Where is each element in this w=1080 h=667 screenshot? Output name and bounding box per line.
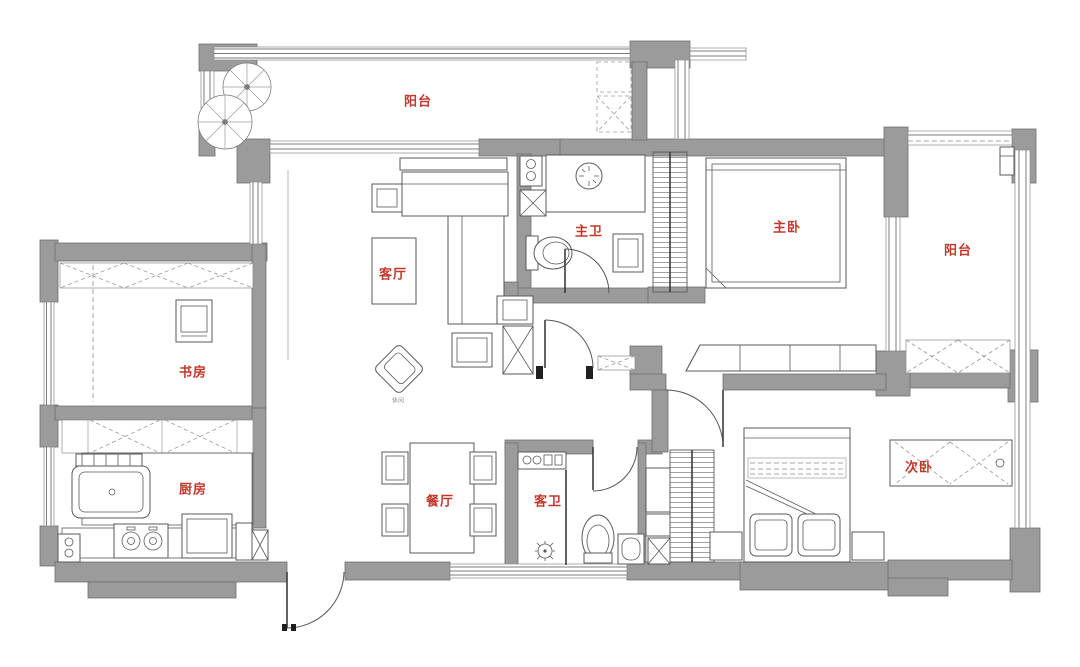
armchair-note: 休闲 xyxy=(392,396,404,405)
master-wardrobe xyxy=(653,152,687,292)
room-label-dining-room: 餐厅 xyxy=(426,491,454,510)
master-bedroom-furniture xyxy=(686,158,876,371)
room-label-balcony-right: 阳台 xyxy=(944,240,972,259)
balcony-right-fixtures xyxy=(906,147,1014,373)
room-label-master-bath: 主卫 xyxy=(575,221,603,240)
study-furniture xyxy=(60,263,253,402)
room-label-kitchen: 厨房 xyxy=(179,479,207,498)
room-label-master-bedroom: 主卧 xyxy=(773,217,801,236)
floor-plan: 阳台 主卫 主卧 阳台 客厅 书房 厨房 餐厅 客卫 次卧 休闲 xyxy=(0,0,1080,667)
room-label-living-room: 客厅 xyxy=(379,264,407,283)
second-bedroom-furniture xyxy=(670,428,1012,562)
balcony-storage-cabinet xyxy=(597,62,631,132)
armchair-icon xyxy=(374,344,425,395)
room-label-balcony-top: 阳台 xyxy=(404,91,432,110)
floor-plan-canvas xyxy=(0,0,1080,667)
hallway-cabinets xyxy=(497,296,635,379)
master-bath-fixtures xyxy=(520,155,645,272)
room-label-study: 书房 xyxy=(179,362,207,381)
room-label-second-bedroom: 次卧 xyxy=(905,457,933,476)
room-label-guest-bath: 客卫 xyxy=(534,491,562,510)
kitchen-fixtures xyxy=(58,420,268,562)
